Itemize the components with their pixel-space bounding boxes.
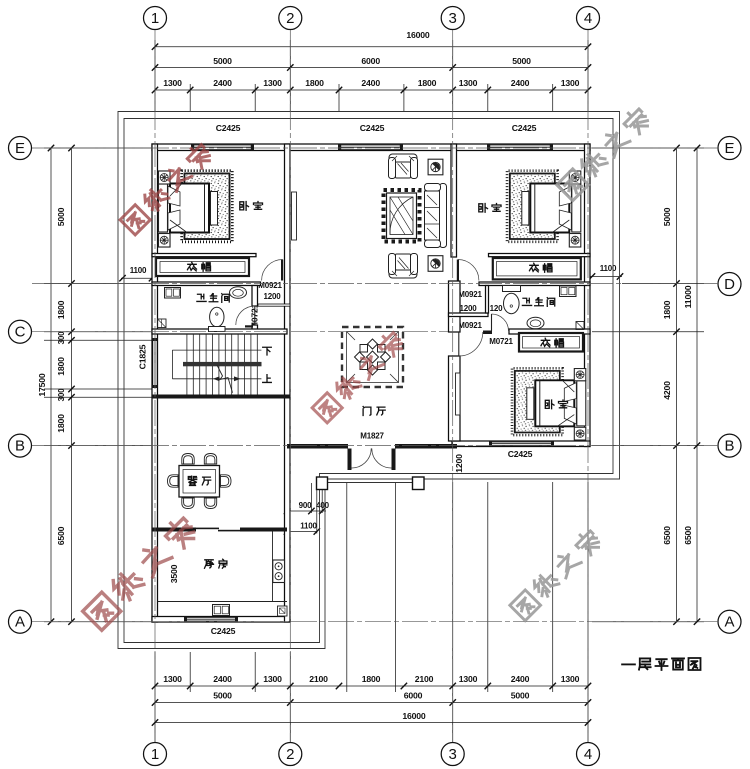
- svg-text:4200: 4200: [662, 381, 672, 400]
- svg-text:1300: 1300: [459, 674, 478, 684]
- svg-text:300: 300: [57, 331, 66, 344]
- svg-text:6000: 6000: [404, 691, 423, 701]
- svg-text:4: 4: [584, 10, 592, 27]
- svg-text:6500: 6500: [683, 526, 693, 545]
- svg-text:E: E: [15, 140, 25, 157]
- svg-text:2400: 2400: [511, 674, 530, 684]
- svg-text:1100: 1100: [300, 522, 317, 531]
- svg-text:6000: 6000: [361, 56, 380, 66]
- svg-text:16000: 16000: [406, 30, 430, 40]
- svg-text:6500: 6500: [56, 526, 66, 545]
- svg-text:M0921: M0921: [458, 321, 482, 330]
- svg-text:1100: 1100: [600, 264, 617, 273]
- svg-text:11000: 11000: [683, 285, 693, 308]
- svg-text:1: 1: [151, 10, 159, 27]
- svg-text:B: B: [15, 438, 25, 455]
- svg-text:4: 4: [584, 746, 592, 763]
- svg-text:D: D: [724, 276, 735, 293]
- svg-text:1800: 1800: [56, 414, 66, 433]
- svg-text:1100: 1100: [130, 266, 147, 275]
- svg-text:M0921: M0921: [458, 290, 482, 299]
- svg-text:2400: 2400: [361, 78, 380, 88]
- svg-text:300: 300: [57, 388, 66, 401]
- svg-text:M0921: M0921: [258, 281, 282, 290]
- svg-text:2400: 2400: [213, 78, 232, 88]
- svg-text:1800: 1800: [305, 78, 324, 88]
- svg-text:400: 400: [316, 501, 329, 510]
- svg-text:1200: 1200: [264, 292, 282, 301]
- svg-text:120: 120: [490, 304, 503, 313]
- svg-text:C2425: C2425: [216, 123, 241, 133]
- svg-text:2100: 2100: [309, 674, 328, 684]
- svg-text:A: A: [724, 614, 734, 631]
- svg-text:B: B: [724, 438, 734, 455]
- svg-text:1800: 1800: [362, 674, 381, 684]
- svg-text:3: 3: [449, 10, 457, 27]
- svg-text:1: 1: [151, 746, 159, 763]
- svg-text:5000: 5000: [512, 56, 531, 66]
- svg-text:1300: 1300: [459, 78, 478, 88]
- svg-text:1200: 1200: [460, 304, 478, 313]
- svg-text:1800: 1800: [662, 300, 672, 319]
- svg-text:1300: 1300: [163, 674, 182, 684]
- svg-text:1300: 1300: [561, 674, 580, 684]
- svg-text:2: 2: [286, 746, 294, 763]
- svg-text:2400: 2400: [511, 78, 530, 88]
- svg-text:1300: 1300: [263, 674, 282, 684]
- svg-text:1800: 1800: [418, 78, 437, 88]
- svg-text:C2425: C2425: [211, 626, 236, 636]
- svg-text:C2425: C2425: [360, 123, 385, 133]
- svg-text:1300: 1300: [561, 78, 580, 88]
- svg-text:A: A: [15, 614, 25, 631]
- svg-text:C2425: C2425: [512, 123, 537, 133]
- svg-text:1300: 1300: [263, 78, 282, 88]
- svg-text:17500: 17500: [37, 373, 47, 397]
- svg-text:1800: 1800: [56, 300, 66, 319]
- svg-text:2: 2: [286, 10, 294, 27]
- svg-text:16000: 16000: [402, 711, 426, 721]
- svg-text:C1825: C1825: [138, 344, 148, 369]
- svg-text:2100: 2100: [415, 674, 434, 684]
- svg-text:900: 900: [299, 501, 312, 510]
- svg-text:1800: 1800: [56, 357, 66, 376]
- svg-text:3500: 3500: [169, 564, 179, 583]
- svg-text:5000: 5000: [213, 56, 232, 66]
- svg-text:1300: 1300: [163, 78, 182, 88]
- svg-text:6500: 6500: [662, 526, 672, 545]
- svg-text:C2425: C2425: [508, 449, 533, 459]
- svg-text:5000: 5000: [213, 691, 232, 701]
- svg-text:5000: 5000: [511, 691, 530, 701]
- svg-text:2400: 2400: [213, 674, 232, 684]
- svg-text:5000: 5000: [662, 207, 672, 226]
- svg-text:1200: 1200: [454, 454, 464, 473]
- svg-text:E: E: [724, 140, 734, 157]
- svg-text:C: C: [15, 324, 26, 341]
- svg-text:5000: 5000: [56, 207, 66, 226]
- svg-text:3: 3: [449, 746, 457, 763]
- svg-text:M1827: M1827: [360, 432, 384, 441]
- svg-text:M0721: M0721: [489, 337, 513, 346]
